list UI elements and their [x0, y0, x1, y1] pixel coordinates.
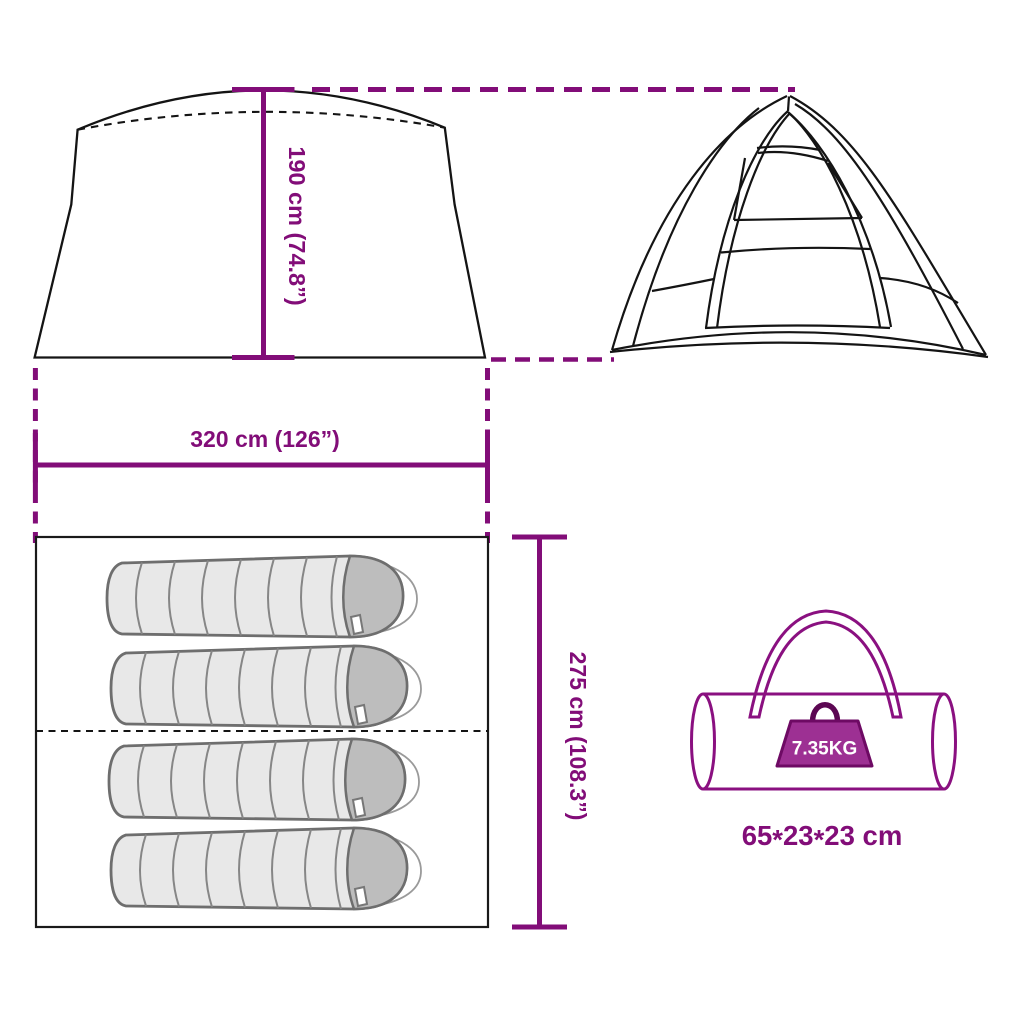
svg-text:65*23*23 cm: 65*23*23 cm — [742, 820, 903, 855]
svg-text:190 cm (74.8”): 190 cm (74.8”) — [284, 146, 310, 305]
svg-text:320 cm (126”): 320 cm (126”) — [190, 426, 340, 452]
svg-text:275 cm (108.3”): 275 cm (108.3”) — [565, 652, 591, 821]
svg-text:7.35KG: 7.35KG — [792, 739, 857, 760]
